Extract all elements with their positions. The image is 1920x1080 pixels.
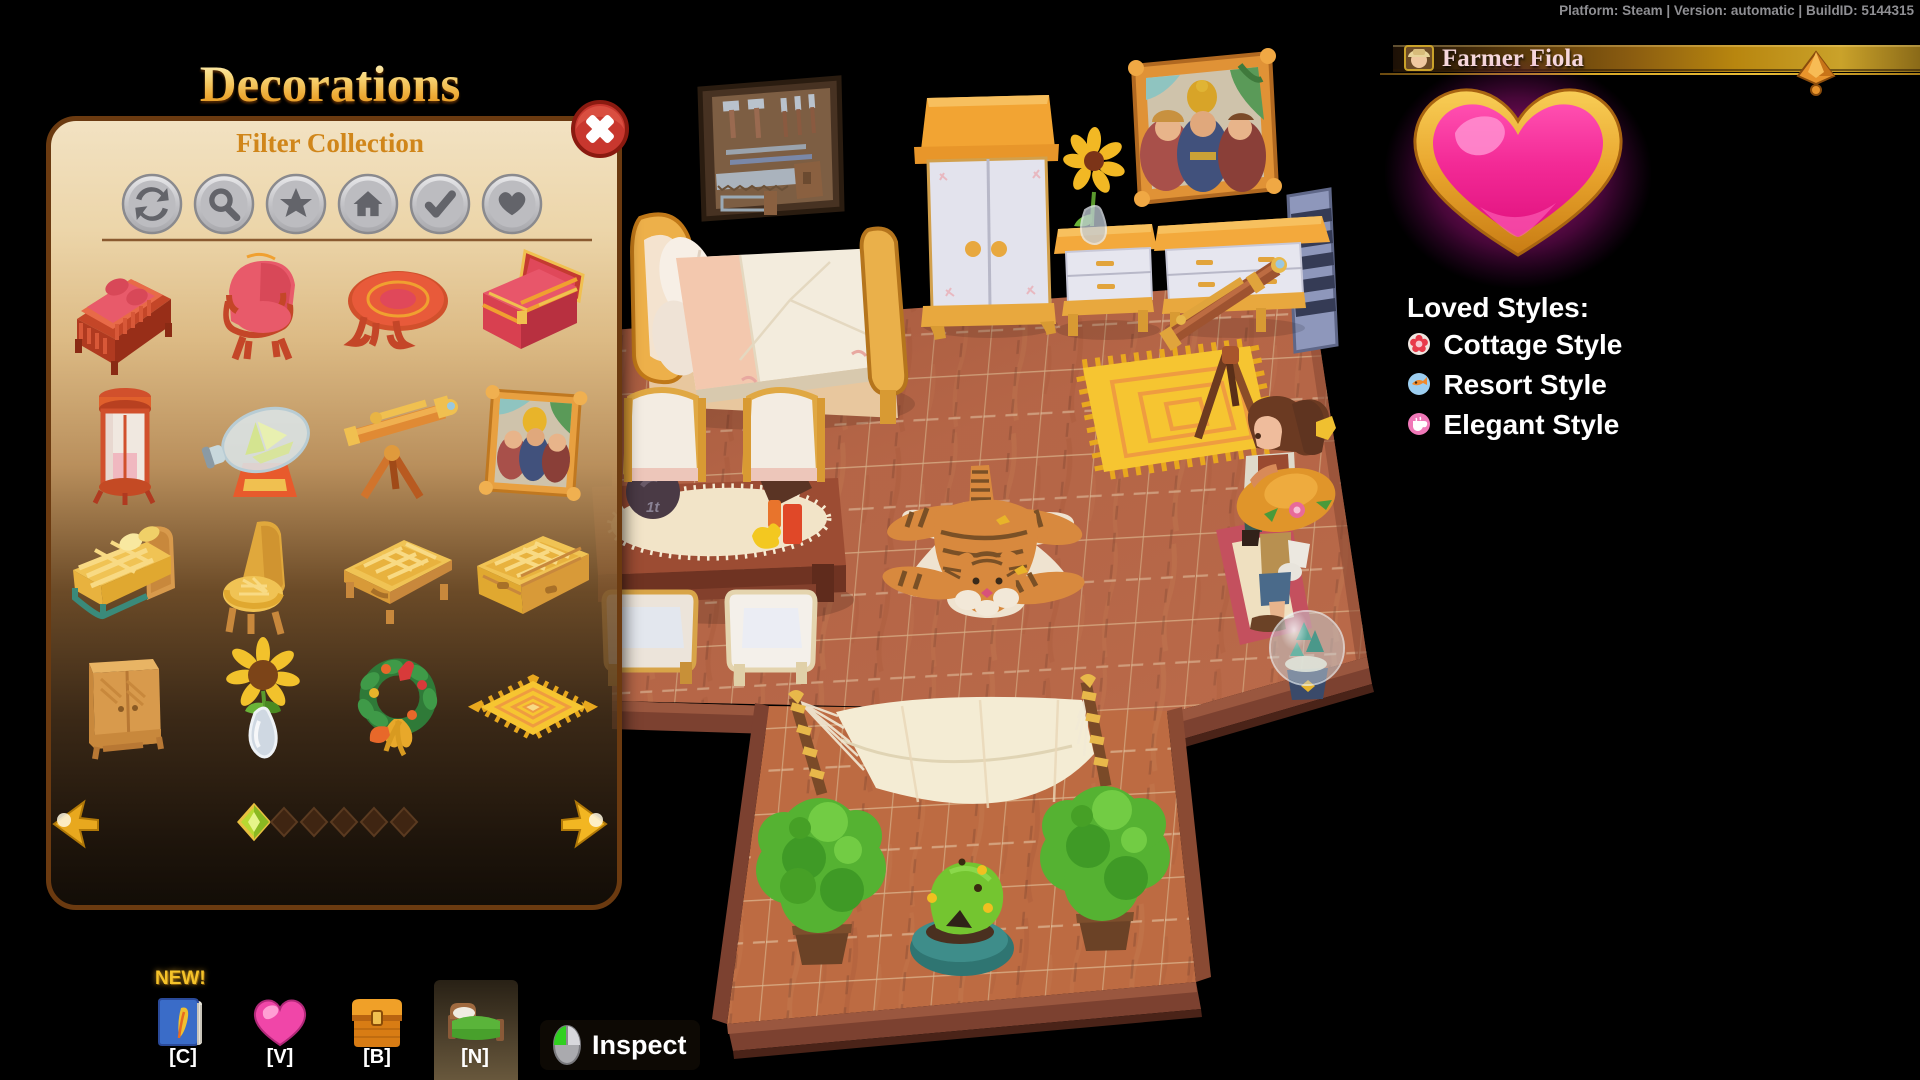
svg-text:1t: 1t <box>646 499 660 516</box>
